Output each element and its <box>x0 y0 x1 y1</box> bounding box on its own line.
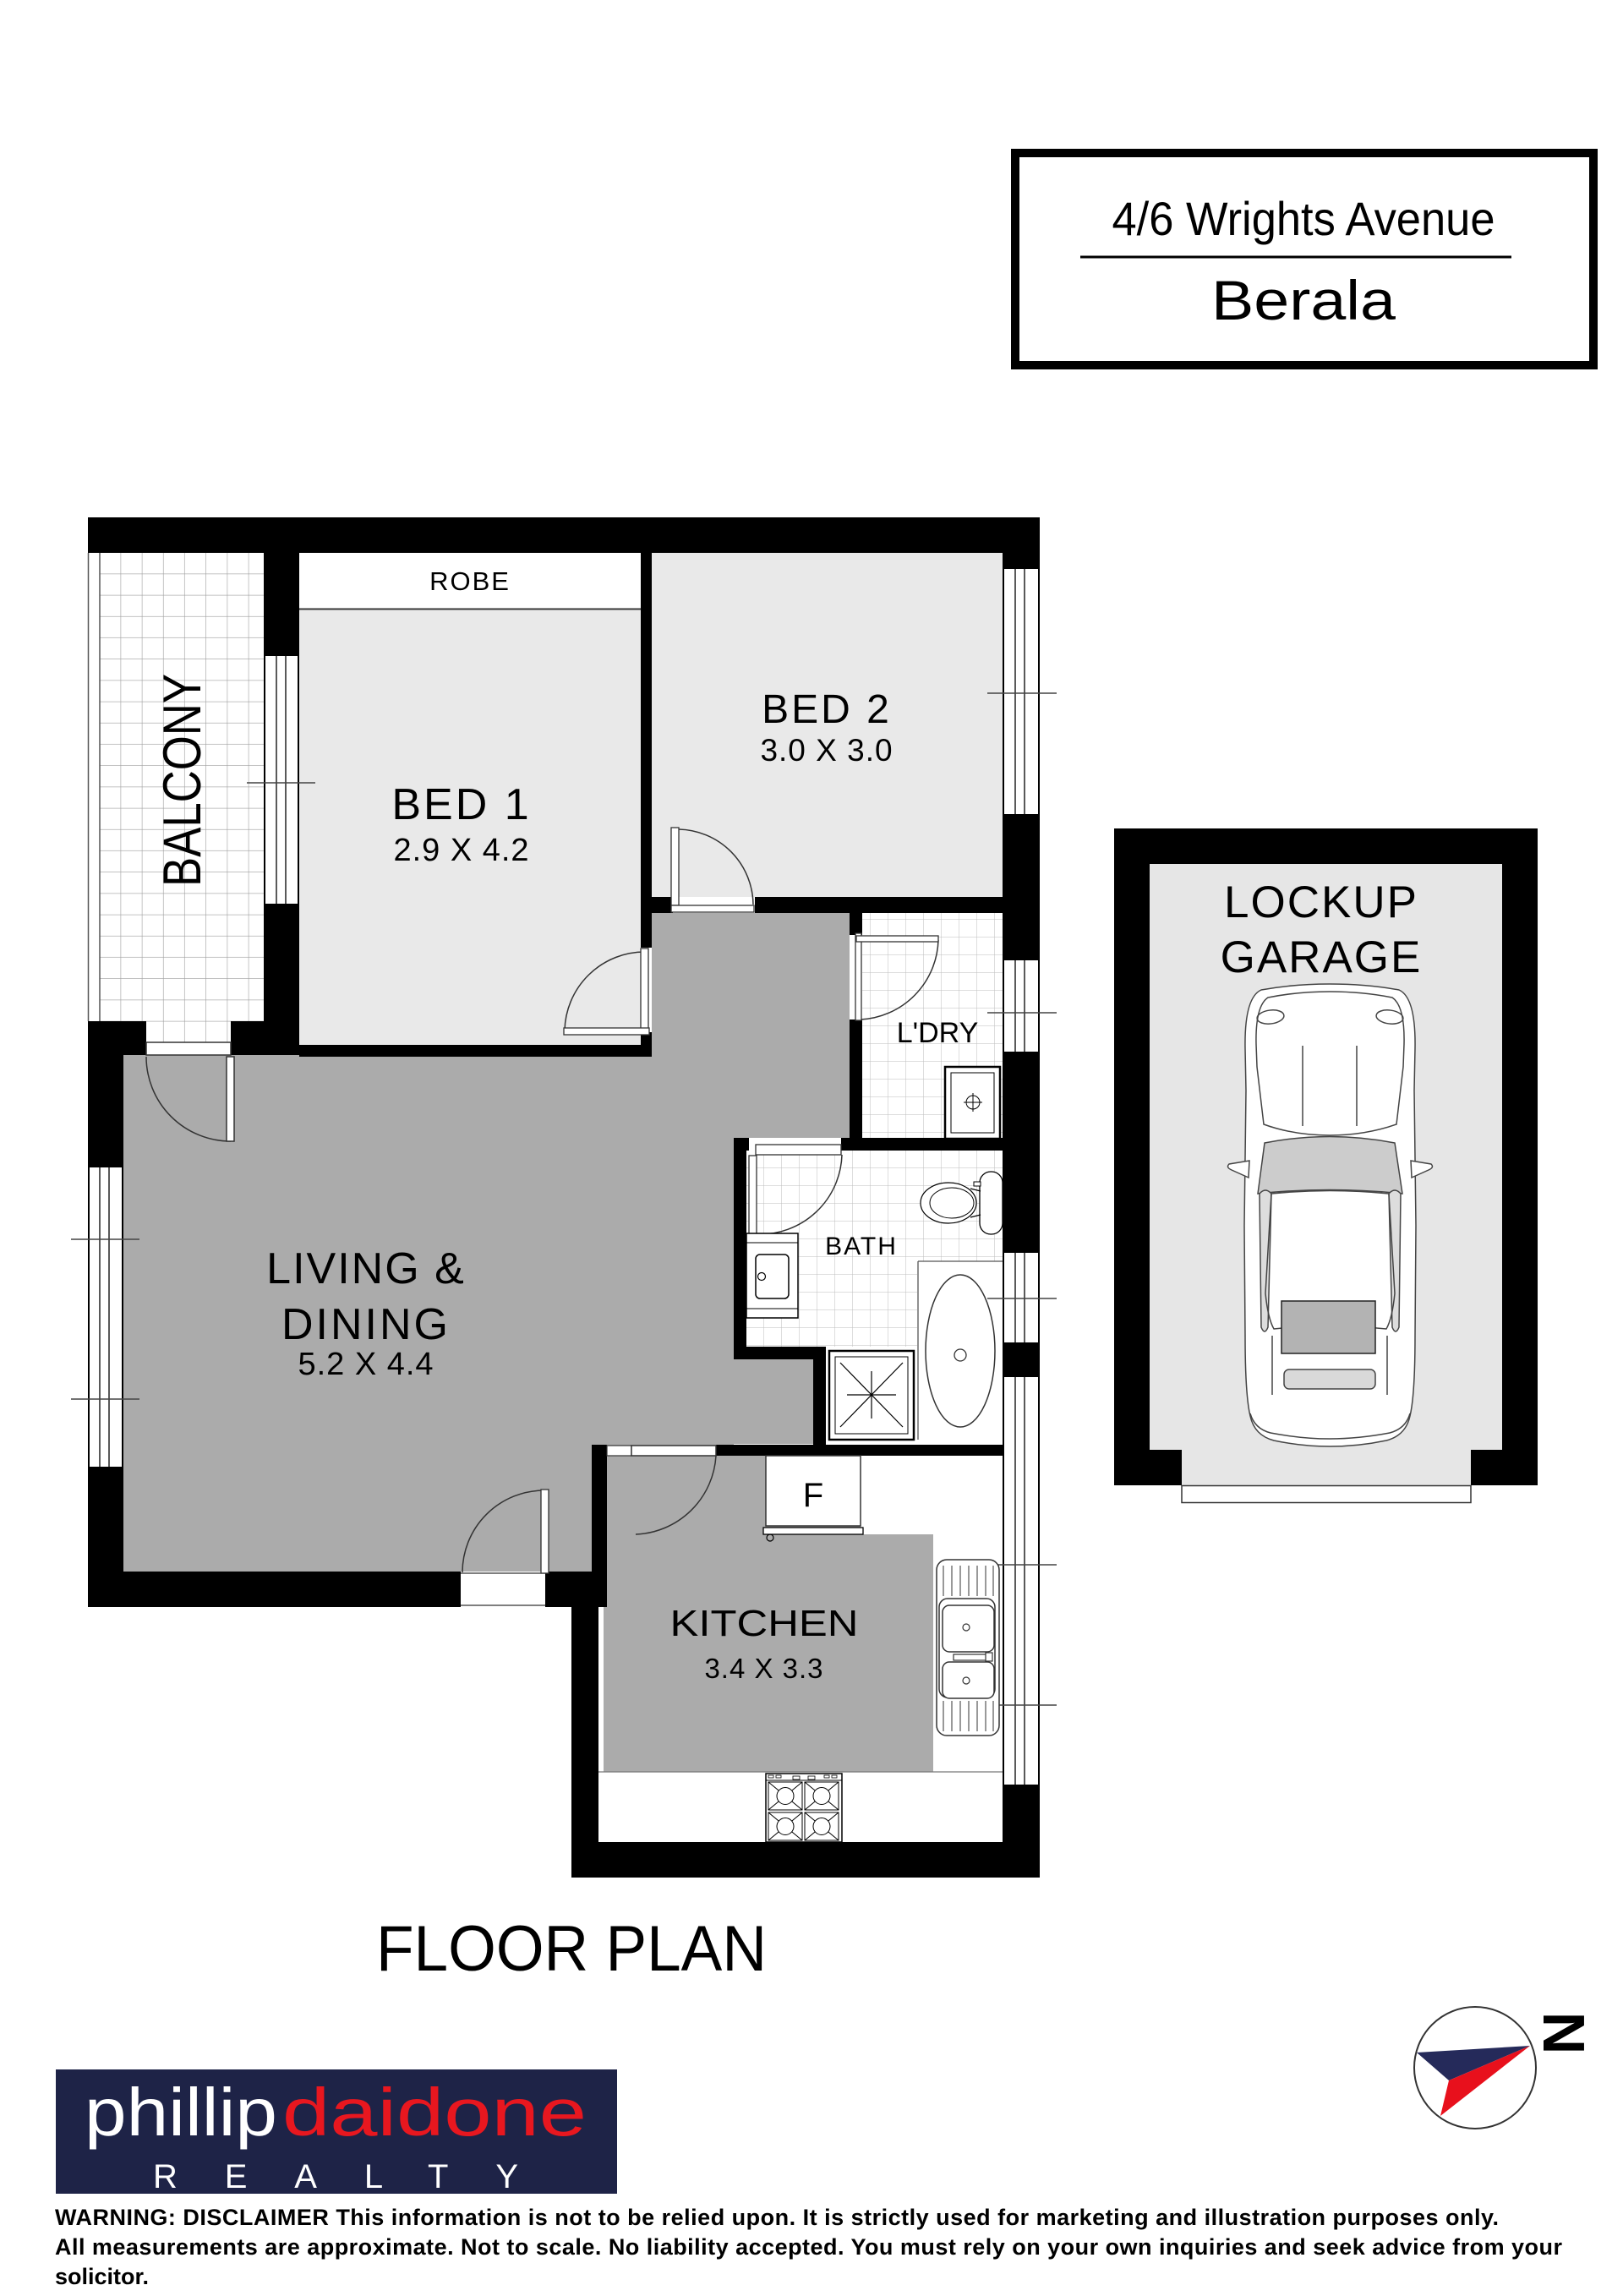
svg-text:L'DRY: L'DRY <box>897 1017 979 1049</box>
svg-text:BED 2: BED 2 <box>762 687 892 732</box>
svg-text:LOCKUP: LOCKUP <box>1224 877 1418 927</box>
svg-text:BED 1: BED 1 <box>391 780 531 829</box>
svg-text:N: N <box>1531 2012 1597 2055</box>
svg-text:GARAGE: GARAGE <box>1221 932 1423 982</box>
svg-text:5.2 X 4.4: 5.2 X 4.4 <box>298 1347 434 1382</box>
svg-text:4/6 Wrights Avenue: 4/6 Wrights Avenue <box>1112 192 1495 245</box>
svg-text:phillipdaidone: phillipdaidone <box>85 2075 587 2150</box>
svg-text:Berala: Berala <box>1211 269 1396 331</box>
svg-text:3.4 X 3.3: 3.4 X 3.3 <box>704 1653 823 1684</box>
svg-text:KITCHEN: KITCHEN <box>670 1603 859 1644</box>
svg-text:BALCONY: BALCONY <box>153 674 212 887</box>
svg-text:2.9 X 4.2: 2.9 X 4.2 <box>393 833 529 868</box>
svg-text:DINING: DINING <box>281 1300 451 1349</box>
svg-text:BATH: BATH <box>825 1233 898 1260</box>
svg-text:LIVING &: LIVING & <box>266 1244 466 1293</box>
svg-text:FLOOR PLAN: FLOOR PLAN <box>376 1913 767 1985</box>
svg-text:solicitor.: solicitor. <box>55 2264 149 2289</box>
svg-text:F: F <box>803 1477 823 1514</box>
svg-text:WARNING: DISCLAIMER This infor: WARNING: DISCLAIMER This information is … <box>55 2205 1499 2230</box>
svg-text:3.0 X 3.0: 3.0 X 3.0 <box>760 733 893 768</box>
svg-text:All measurements are approxima: All measurements are approximate. Not to… <box>55 2234 1562 2260</box>
svg-text:ROBE: ROBE <box>429 566 511 596</box>
